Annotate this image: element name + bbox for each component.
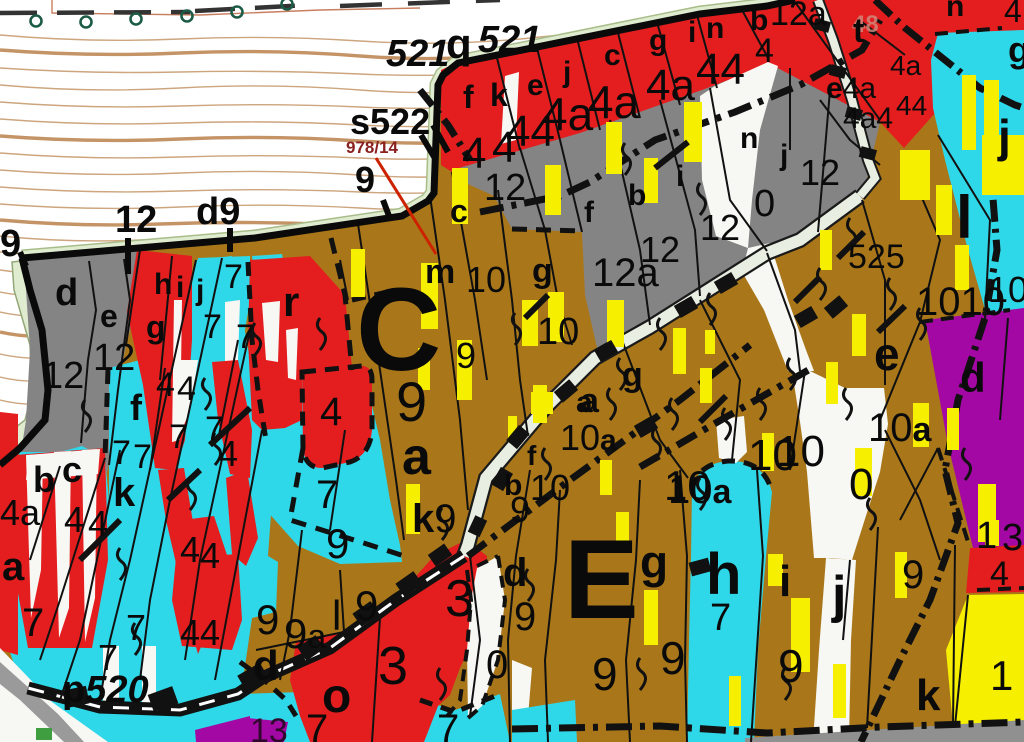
svg-text:d9: d9 (196, 191, 240, 233)
svg-text:12: 12 (42, 355, 84, 397)
svg-text:e4a: e4a (826, 72, 876, 105)
svg-text:4: 4 (177, 370, 196, 408)
svg-text:9: 9 (256, 596, 279, 643)
svg-text:521: 521 (386, 33, 449, 75)
svg-text:7: 7 (236, 318, 255, 356)
svg-text:9: 9 (0, 223, 21, 265)
svg-text:4a4: 4a4 (843, 102, 893, 135)
svg-text:f: f (463, 79, 474, 115)
svg-text:4: 4 (156, 366, 175, 404)
svg-text:9: 9 (355, 582, 378, 629)
svg-text:7: 7 (437, 707, 459, 742)
svg-text:10: 10 (776, 427, 825, 476)
svg-text:a: a (576, 386, 593, 419)
svg-text:9a: 9a (284, 610, 326, 657)
svg-text:44: 44 (896, 90, 927, 121)
svg-text:r: r (283, 278, 299, 325)
svg-text:3: 3 (1002, 517, 1023, 559)
svg-text:9: 9 (902, 553, 924, 597)
svg-text:i: i (676, 160, 684, 193)
svg-text:10a: 10a (560, 417, 617, 458)
svg-text:k: k (113, 471, 136, 515)
svg-text:44: 44 (696, 45, 745, 94)
svg-text:n: n (706, 12, 724, 45)
svg-text:0: 0 (849, 460, 873, 509)
svg-text:12: 12 (800, 152, 840, 193)
svg-text:a: a (2, 545, 25, 589)
svg-text:978/14: 978/14 (346, 138, 399, 157)
svg-text:0: 0 (754, 183, 775, 225)
svg-text:12: 12 (484, 167, 526, 209)
svg-text:j: j (562, 56, 571, 89)
svg-text:4: 4 (218, 433, 238, 474)
svg-text:7: 7 (710, 597, 731, 639)
svg-text:4a: 4a (646, 61, 695, 110)
svg-text:j: j (831, 566, 846, 624)
svg-text:d: d (55, 272, 78, 314)
svg-text:9: 9 (510, 489, 530, 530)
svg-text:b: b (33, 459, 55, 500)
svg-text:0: 0 (486, 643, 508, 687)
svg-text:9: 9 (456, 335, 476, 376)
svg-text:n: n (946, 0, 964, 23)
svg-text:4: 4 (990, 555, 1009, 593)
svg-text:j: j (779, 139, 788, 172)
svg-text:d: d (503, 551, 527, 595)
svg-text:4a: 4a (588, 76, 640, 128)
svg-text:l: l (956, 184, 973, 251)
svg-text:k9: k9 (412, 497, 457, 541)
svg-text:7: 7 (224, 258, 243, 296)
svg-text:7: 7 (112, 434, 131, 472)
svg-text:9: 9 (355, 159, 375, 200)
svg-text:3: 3 (378, 636, 408, 696)
svg-text:7: 7 (98, 637, 118, 678)
svg-text:9: 9 (660, 632, 686, 684)
svg-text:n: n (740, 122, 758, 155)
svg-text:g: g (622, 356, 643, 394)
svg-text:44: 44 (180, 612, 220, 653)
svg-text:12: 12 (640, 229, 680, 270)
svg-text:4: 4 (462, 129, 486, 178)
svg-text:4: 4 (88, 503, 108, 544)
svg-text:f: f (130, 387, 143, 428)
svg-text:s522: s522 (350, 101, 430, 142)
svg-text:12a: 12a (770, 0, 827, 33)
svg-text:j: j (997, 110, 1011, 162)
svg-text:l: l (332, 592, 341, 639)
svg-text:g: g (649, 24, 667, 57)
svg-text:9: 9 (396, 370, 427, 433)
svg-text:1: 1 (990, 652, 1013, 699)
svg-text:7: 7 (126, 607, 146, 648)
svg-text:7: 7 (203, 308, 222, 346)
svg-text:a: a (402, 428, 432, 486)
svg-text:m: m (425, 253, 455, 291)
svg-text:4: 4 (64, 499, 84, 540)
svg-text:4a: 4a (890, 50, 922, 81)
svg-text:g: g (146, 309, 166, 345)
svg-text:7: 7 (316, 473, 338, 517)
svg-text:9: 9 (592, 648, 618, 700)
svg-text:12: 12 (93, 337, 135, 379)
svg-text:7: 7 (133, 438, 152, 476)
svg-text:j: j (195, 274, 204, 307)
svg-text:c: c (604, 39, 621, 72)
svg-text:q: q (446, 20, 472, 67)
svg-text:10a: 10a (668, 468, 733, 512)
svg-text:4: 4 (755, 32, 774, 70)
svg-text:4: 4 (200, 535, 220, 576)
svg-text:E: E (564, 517, 639, 642)
svg-text:10: 10 (466, 259, 506, 300)
svg-text:i: i (176, 271, 184, 304)
svg-text:1: 1 (976, 515, 997, 557)
svg-text:10: 10 (530, 467, 570, 508)
svg-text:e: e (100, 298, 118, 334)
svg-text:c: c (450, 193, 468, 229)
svg-text:g: g (1008, 29, 1024, 70)
svg-text:4a: 4a (542, 88, 594, 140)
svg-text:10: 10 (988, 269, 1024, 310)
svg-text:9: 9 (326, 520, 349, 567)
svg-text:7: 7 (306, 707, 328, 742)
svg-text:3: 3 (445, 570, 474, 628)
svg-text:h: h (154, 268, 172, 301)
svg-text:521: 521 (478, 19, 541, 61)
svg-text:13: 13 (250, 712, 288, 742)
svg-text:g: g (532, 252, 553, 290)
svg-text:525: 525 (848, 238, 905, 276)
svg-text:7: 7 (22, 601, 44, 645)
svg-text:c: c (62, 449, 82, 490)
svg-text:t: t (853, 12, 864, 50)
svg-text:7: 7 (169, 418, 188, 456)
svg-text:12: 12 (700, 207, 740, 248)
svg-text:f: f (584, 196, 595, 229)
svg-text:d: d (253, 642, 279, 689)
svg-text:k: k (916, 671, 941, 720)
svg-text:b: b (628, 179, 646, 212)
svg-text:g: g (640, 536, 668, 588)
svg-text:4: 4 (180, 529, 200, 570)
svg-text:e: e (874, 328, 900, 380)
svg-text:10a: 10a (868, 406, 933, 450)
svg-text:d: d (960, 354, 986, 401)
svg-text:4: 4 (320, 390, 342, 434)
svg-text:i: i (779, 557, 791, 606)
svg-text:4: 4 (1004, 0, 1022, 29)
svg-text:12: 12 (115, 199, 157, 241)
svg-text:9: 9 (778, 640, 804, 692)
svg-text:10: 10 (537, 311, 579, 353)
svg-text:9: 9 (514, 595, 536, 639)
